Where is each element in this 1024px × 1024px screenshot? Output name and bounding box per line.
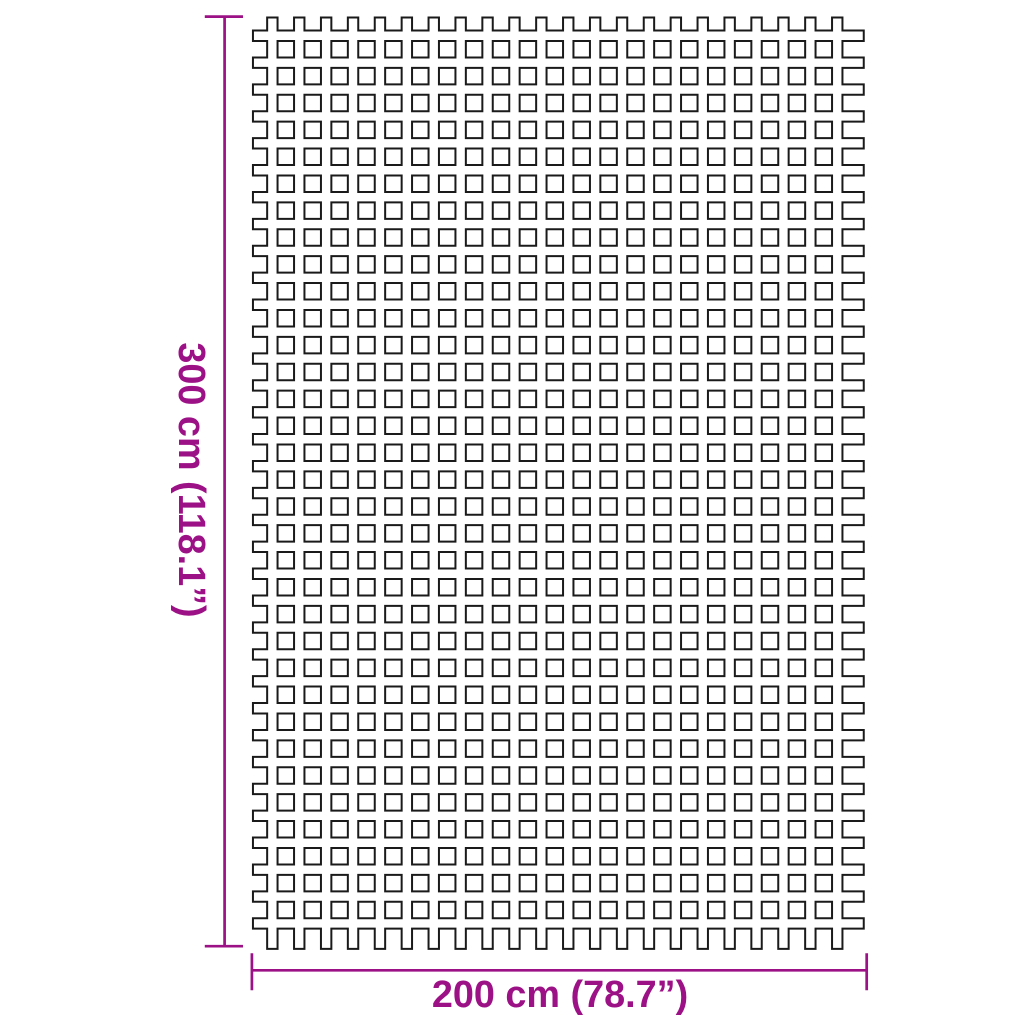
svg-text:200 cm (78.7”): 200 cm (78.7”) (432, 974, 688, 1016)
svg-text:300 cm (118.1”): 300 cm (118.1”) (170, 342, 212, 617)
